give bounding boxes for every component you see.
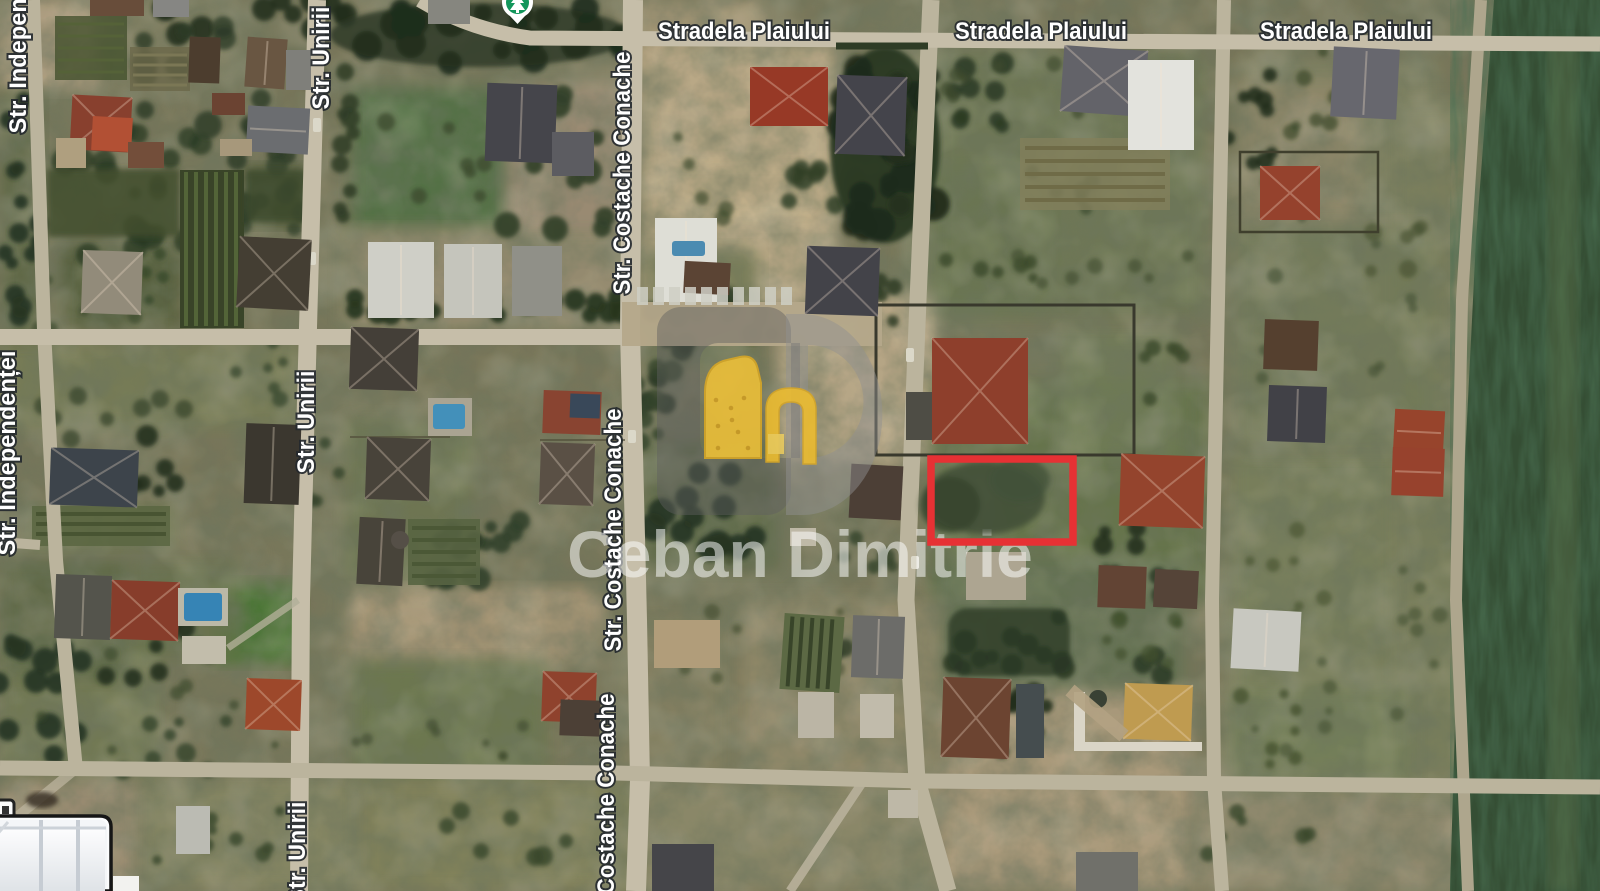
svg-text:Str. Independenței: Str. Independenței <box>0 351 21 556</box>
svg-text:Str. Costache Conache: Str. Costache Conache <box>593 694 620 891</box>
svg-text:Str. Unirii: Str. Unirii <box>284 802 311 891</box>
svg-text:Stradela Plaiului: Stradela Plaiului <box>658 18 830 45</box>
svg-text:Str. Unirii: Str. Unirii <box>308 7 335 110</box>
svg-text:Str. Unirii: Str. Unirii <box>293 371 320 474</box>
svg-text:Str. Costache Conache: Str. Costache Conache <box>609 52 636 295</box>
svg-text:Stradela Plaiului: Stradela Plaiului <box>1260 18 1432 45</box>
svg-text:Str. Independenței: Str. Independenței <box>5 0 32 134</box>
svg-text:Stradela Plaiului: Stradela Plaiului <box>955 18 1127 45</box>
